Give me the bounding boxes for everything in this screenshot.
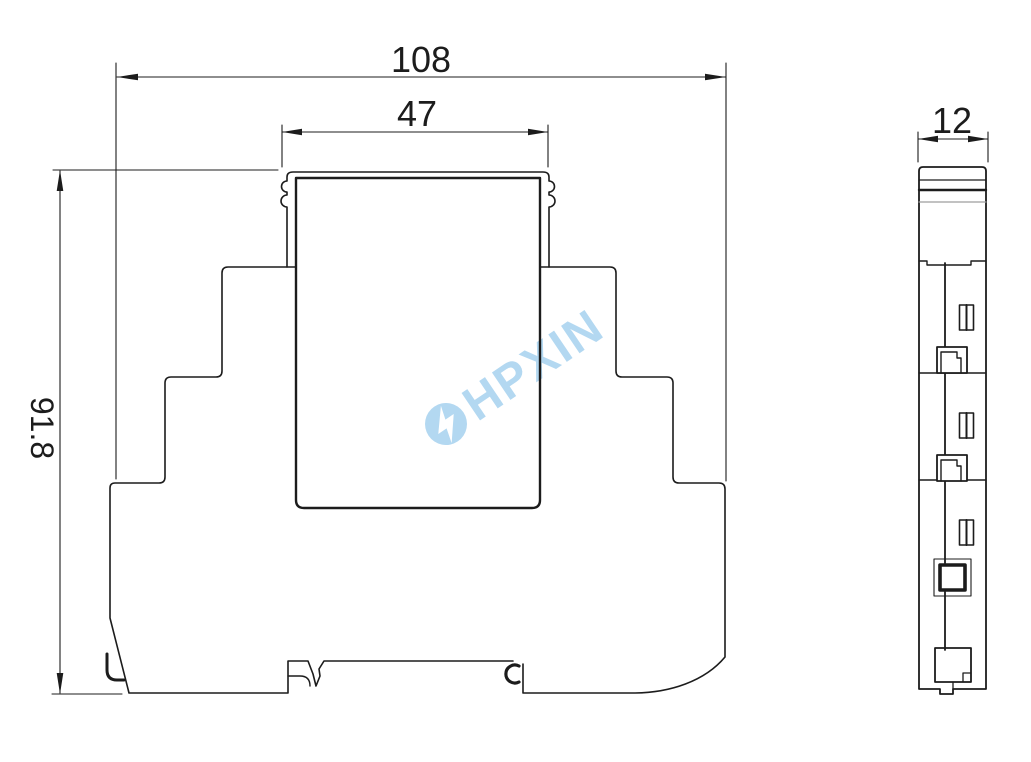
side-section-divider-1 bbox=[919, 261, 986, 265]
arrow-icon bbox=[282, 129, 302, 136]
terminal-slot-1 bbox=[960, 305, 974, 330]
terminal-slot-3 bbox=[960, 520, 974, 545]
dimension-drawing: HPXIN bbox=[0, 0, 1031, 762]
side-window-frame bbox=[934, 559, 971, 596]
din-release-hook bbox=[107, 654, 124, 680]
latch-tab-2 bbox=[937, 455, 967, 481]
technical-drawing-page: HPXIN bbox=[0, 0, 1031, 762]
watermark-text: HPXIN bbox=[454, 300, 614, 432]
side-body-outline bbox=[919, 167, 986, 694]
dim-label-depth: 12 bbox=[932, 100, 972, 141]
arrow-icon bbox=[57, 673, 64, 694]
arrow-icon bbox=[528, 129, 548, 136]
rail-slot-detail bbox=[288, 676, 310, 686]
dim-label-overall-width: 108 bbox=[391, 39, 451, 80]
front-socket-outline bbox=[296, 178, 540, 508]
din-c-clip bbox=[506, 665, 519, 683]
arrow-icon bbox=[705, 74, 726, 81]
arrow-icon bbox=[117, 74, 138, 81]
front-body-left-profile bbox=[110, 267, 513, 693]
dim-label-top-width: 47 bbox=[397, 93, 437, 134]
arrow-icon bbox=[57, 170, 64, 191]
dim-label-height: 91.8 bbox=[24, 397, 60, 459]
front-cap-outline bbox=[281, 172, 555, 267]
terminal-slot-2 bbox=[960, 413, 974, 438]
side-view bbox=[919, 167, 986, 694]
latch-tab-1 bbox=[937, 347, 967, 373]
front-view bbox=[107, 172, 725, 693]
watermark: HPXIN bbox=[414, 300, 613, 458]
din-slider-block bbox=[935, 648, 971, 689]
